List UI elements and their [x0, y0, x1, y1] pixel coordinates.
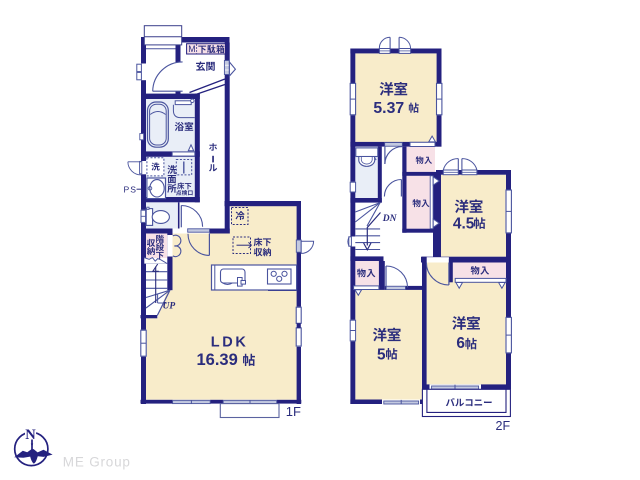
svg-text:ME Group: ME Group: [63, 454, 131, 469]
svg-text:DN: DN: [382, 214, 398, 224]
svg-text:LDK: LDK: [211, 335, 249, 351]
svg-text:1F: 1F: [286, 404, 301, 419]
svg-text:5.37: 5.37: [373, 100, 404, 117]
svg-text:UP: UP: [163, 302, 176, 312]
svg-text:6: 6: [456, 335, 465, 352]
svg-text:N: N: [25, 427, 36, 443]
svg-text:PS: PS: [124, 184, 137, 194]
svg-text:2F: 2F: [496, 419, 511, 433]
svg-text:16.39: 16.39: [197, 351, 238, 369]
svg-text:5: 5: [377, 346, 386, 363]
svg-text:4.5: 4.5: [453, 216, 475, 233]
svg-text:M: M: [188, 44, 195, 54]
